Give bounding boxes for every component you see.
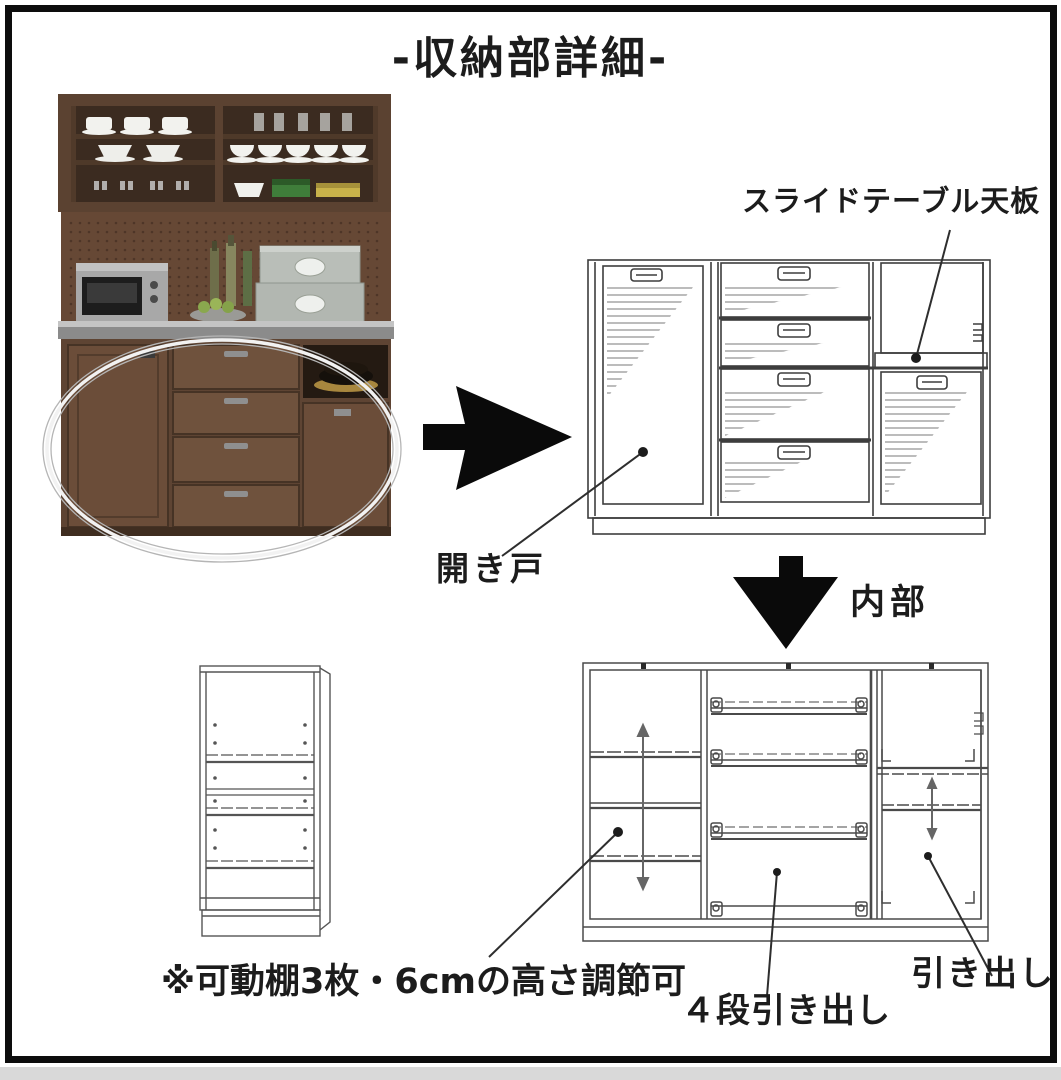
cabinet-front-diagram	[585, 250, 1007, 542]
photo-hutch	[58, 94, 391, 212]
product-detail-page: -収納部詳細-	[0, 0, 1061, 1080]
drawer-rails	[711, 698, 867, 916]
four-tier-drawer-label: ４段引き出し	[681, 993, 891, 1030]
adjustable-shelves	[206, 755, 314, 868]
cabinet-photo	[58, 93, 396, 563]
cabinet-interior-diagram	[575, 653, 1007, 955]
shelf-adjust-arrow-right	[928, 779, 936, 838]
photo-counter-section	[58, 212, 394, 339]
shelf-pin-holes	[213, 723, 307, 850]
slide-table-compartment	[881, 263, 983, 353]
hatch-shading	[607, 282, 967, 498]
left-shelves	[590, 752, 701, 861]
slide-table-label: スライドテーブル天板	[742, 186, 1040, 218]
page-title: -収納部詳細-	[0, 22, 1061, 86]
page-bottom-strip	[0, 1067, 1061, 1080]
right-arrow-icon	[423, 386, 572, 490]
open-door-label: 開き戸	[436, 551, 547, 587]
drawer-label: 引き出し	[911, 956, 1055, 993]
interior-label: 内部	[850, 584, 930, 623]
shelf-column-diagram	[193, 658, 353, 950]
adjustable-shelf-note: ※可動棚3枚・6cmの高さ調節可	[161, 963, 686, 1002]
photo-lower-cabinet	[61, 339, 391, 536]
down-arrow-icon	[733, 556, 838, 649]
hinge-tabs	[641, 663, 934, 669]
